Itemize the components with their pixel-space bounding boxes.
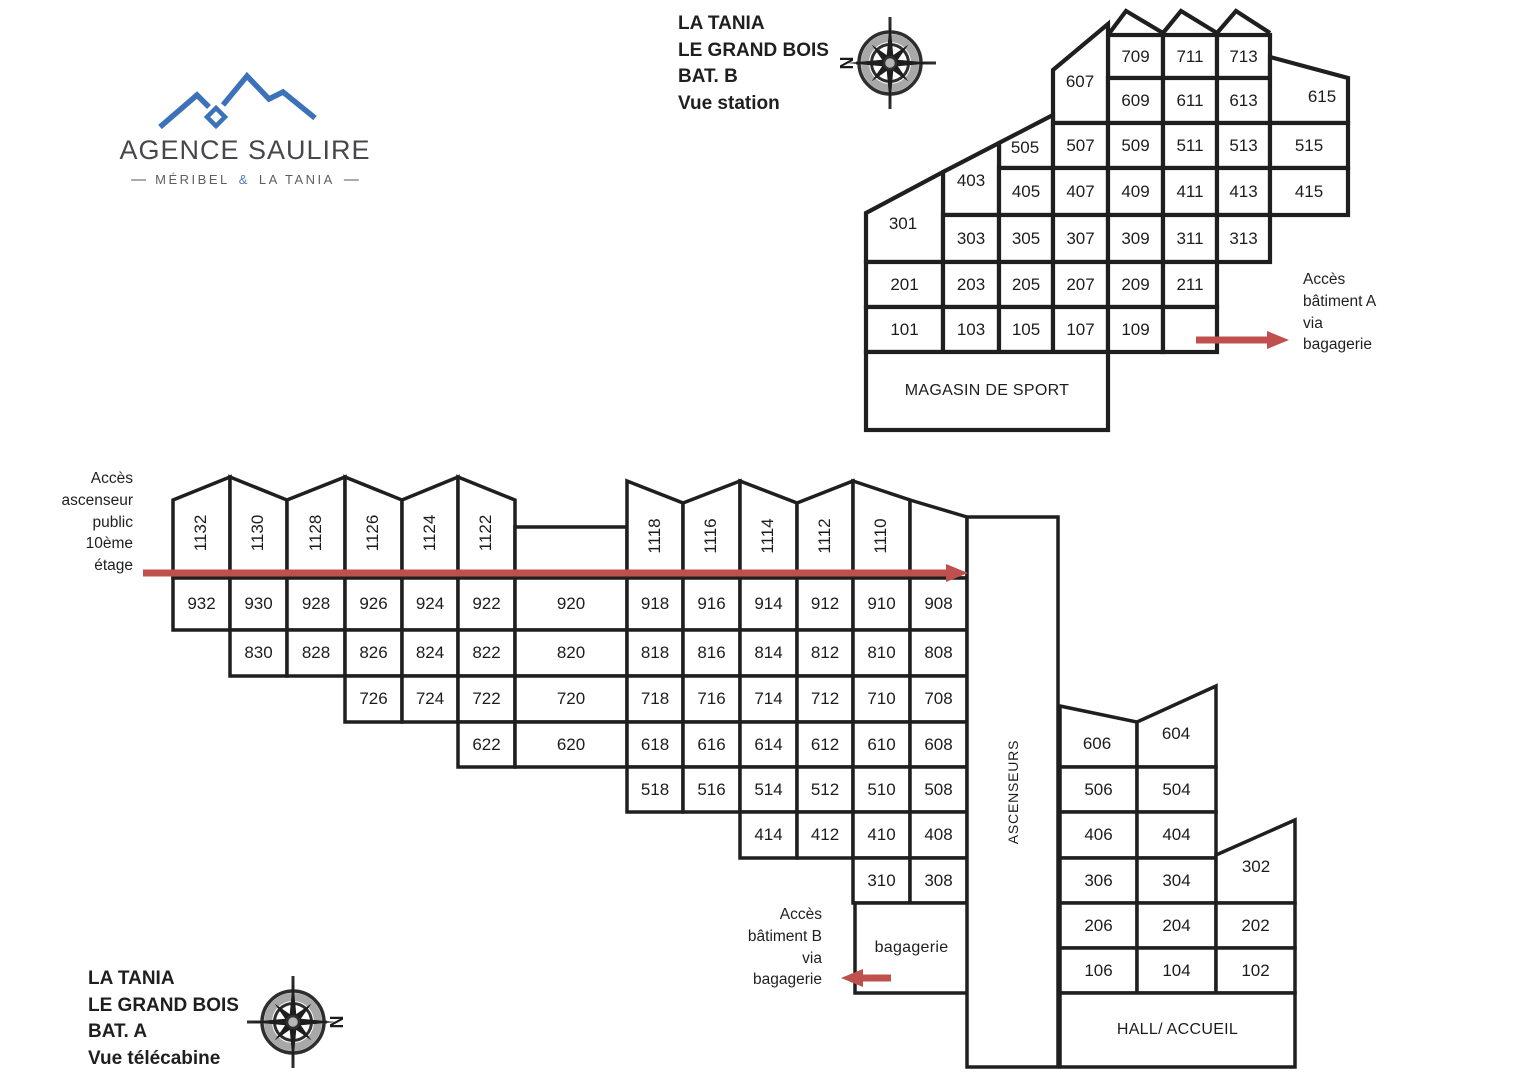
room-205-outline xyxy=(999,262,1053,307)
room-202-outline xyxy=(1216,903,1295,948)
room-104-outline xyxy=(1137,948,1216,993)
room-211-outline xyxy=(1163,262,1217,307)
compass-rose-icon: N xyxy=(247,976,346,1068)
room-511-outline xyxy=(1163,123,1217,168)
room-926-outline xyxy=(345,578,402,630)
room-609-outline xyxy=(1108,78,1163,123)
tagline-dash-left: — xyxy=(131,171,146,188)
room-408-outline xyxy=(910,812,967,858)
tagline-la-tania: LA TANIA xyxy=(259,172,335,187)
room-1132-outline xyxy=(173,477,230,578)
room-1118-outline xyxy=(627,481,683,578)
room-512-outline xyxy=(797,767,853,812)
room-505-outline xyxy=(999,115,1053,168)
room-808-outline xyxy=(910,630,967,676)
note-access-elevator: Accès ascenseur public 10ème étage xyxy=(23,468,133,577)
room-614-outline xyxy=(740,722,797,767)
room-509-outline xyxy=(1108,123,1163,168)
compass-rose-icon: N xyxy=(837,17,936,109)
room-ascenseurs-outline xyxy=(967,517,1058,1067)
room-606-outline xyxy=(1060,706,1137,767)
room-1110-outline xyxy=(853,481,910,578)
tagline-meribel: MÉRIBEL xyxy=(155,172,230,187)
room-103-outline xyxy=(943,307,999,352)
room-814-outline xyxy=(740,630,797,676)
room-109-outline xyxy=(1108,307,1163,352)
room-410-outline xyxy=(853,812,910,858)
room-816-outline xyxy=(683,630,740,676)
room-1130-outline xyxy=(230,477,287,578)
room-818-outline xyxy=(627,630,683,676)
room-1112-outline xyxy=(797,481,853,578)
room-308-outline xyxy=(910,858,967,903)
room-912-outline xyxy=(797,578,853,630)
room-409-outline xyxy=(1108,168,1163,215)
room-918-outline xyxy=(627,578,683,630)
room-716-outline xyxy=(683,676,740,722)
room-magasin-de-sport-outline xyxy=(866,352,1108,430)
room-204-outline xyxy=(1137,903,1216,948)
room-empty-outline xyxy=(910,500,967,578)
room-514-outline xyxy=(740,767,797,812)
room-830-outline xyxy=(230,630,287,676)
room-1124-outline xyxy=(402,477,458,578)
room-303-outline xyxy=(943,215,999,262)
room-709-outline xyxy=(1108,35,1163,78)
room-405-outline xyxy=(999,168,1053,215)
roof-peak-line-3 xyxy=(1217,11,1270,33)
room-306-outline xyxy=(1060,858,1137,903)
room-720-outline xyxy=(515,676,627,722)
room-307-outline xyxy=(1053,215,1108,262)
compass-n-label: N xyxy=(837,57,857,70)
title-a-line1: LA TANIA xyxy=(88,966,239,993)
room-916-outline xyxy=(683,578,740,630)
room-1114-outline xyxy=(740,481,797,578)
room-611-outline xyxy=(1163,78,1217,123)
room-607-outline xyxy=(1053,24,1108,123)
logo-name: AGENCE SAULIRE xyxy=(105,135,385,166)
room-824-outline xyxy=(402,630,458,676)
room-616-outline xyxy=(683,722,740,767)
room-412-outline xyxy=(797,812,853,858)
room-618-outline xyxy=(627,722,683,767)
room-910-outline xyxy=(853,578,910,630)
title-a-line4: Vue télécabine xyxy=(88,1046,239,1073)
room-404-outline xyxy=(1137,812,1216,858)
roof-peak-line-2 xyxy=(1163,11,1217,33)
room-406-outline xyxy=(1060,812,1137,858)
tagline-dash-right: — xyxy=(344,171,359,188)
room-610-outline xyxy=(853,722,910,767)
room-932-outline xyxy=(173,578,230,630)
roof-peak-line-1 xyxy=(1108,11,1163,35)
room-714-outline xyxy=(740,676,797,722)
title-b-line1: LA TANIA xyxy=(678,11,829,38)
room-710-outline xyxy=(853,676,910,722)
room-812-outline xyxy=(797,630,853,676)
title-building-b: LA TANIA LE GRAND BOIS BAT. B Vue statio… xyxy=(678,11,829,117)
room-311-outline xyxy=(1163,215,1217,262)
room-hall-accueil-outline xyxy=(1060,993,1295,1067)
room-101-outline xyxy=(866,307,943,352)
title-building-a: LA TANIA LE GRAND BOIS BAT. A Vue téléca… xyxy=(88,966,239,1072)
mountain-logo-icon xyxy=(155,60,325,132)
room-305-outline xyxy=(999,215,1053,262)
room-105-outline xyxy=(999,307,1053,352)
room-309-outline xyxy=(1108,215,1163,262)
room-106-outline xyxy=(1060,948,1137,993)
room-708-outline xyxy=(910,676,967,722)
room-201-outline xyxy=(866,262,943,307)
room-908-outline xyxy=(910,578,967,630)
room-612-outline xyxy=(797,722,853,767)
room-613-outline xyxy=(1217,78,1270,123)
room-413-outline xyxy=(1217,168,1270,215)
room-622-outline xyxy=(458,722,515,767)
room-209-outline xyxy=(1108,262,1163,307)
room-515-outline xyxy=(1270,123,1348,168)
room-820-outline xyxy=(515,630,627,676)
room-310-outline xyxy=(853,858,910,903)
room-301-outline xyxy=(866,172,943,262)
compass-n-label: N xyxy=(326,1016,346,1029)
title-b-line2: LE GRAND BOIS xyxy=(678,38,829,65)
room-516-outline xyxy=(683,767,740,812)
room-411-outline xyxy=(1163,168,1217,215)
room-506-outline xyxy=(1060,767,1137,812)
room-711-outline xyxy=(1163,35,1217,78)
room-724-outline xyxy=(402,676,458,722)
title-a-line2: LE GRAND BOIS xyxy=(88,993,239,1020)
room-604-outline xyxy=(1137,686,1216,767)
room-508-outline xyxy=(910,767,967,812)
room-507-outline xyxy=(1053,123,1108,168)
tagline-ampersand: & xyxy=(239,172,250,187)
room-403-outline xyxy=(943,143,999,215)
room-513-outline xyxy=(1217,123,1270,168)
title-b-line4: Vue station xyxy=(678,91,829,118)
room-504-outline xyxy=(1137,767,1216,812)
room-718-outline xyxy=(627,676,683,722)
room-518-outline xyxy=(627,767,683,812)
room-712-outline xyxy=(797,676,853,722)
room-304-outline xyxy=(1137,858,1216,903)
room-102-outline xyxy=(1216,948,1295,993)
room-1126-outline xyxy=(345,477,402,578)
room-empty-outline xyxy=(1163,307,1217,352)
room-415-outline xyxy=(1270,168,1348,215)
room-920-outline xyxy=(515,578,627,630)
room-1116-outline xyxy=(683,481,740,578)
title-a-line3: BAT. A xyxy=(88,1019,239,1046)
room-826-outline xyxy=(345,630,402,676)
room-107-outline xyxy=(1053,307,1108,352)
room-722-outline xyxy=(458,676,515,722)
room-822-outline xyxy=(458,630,515,676)
room-620-outline xyxy=(515,722,627,767)
room-407-outline xyxy=(1053,168,1108,215)
logo-tagline: — MÉRIBEL & LA TANIA — xyxy=(105,171,385,188)
room-810-outline xyxy=(853,630,910,676)
room-924-outline xyxy=(402,578,458,630)
room-207-outline xyxy=(1053,262,1108,307)
room-302-outline xyxy=(1216,820,1295,903)
room-928-outline xyxy=(287,578,345,630)
title-b-line3: BAT. B xyxy=(678,64,829,91)
room-203-outline xyxy=(943,262,999,307)
room-414-outline xyxy=(740,812,797,858)
room-922-outline xyxy=(458,578,515,630)
room-1122-outline xyxy=(458,477,515,578)
note-access-batiment-b: Accès bâtiment B via bagagerie xyxy=(662,904,822,991)
room-914-outline xyxy=(740,578,797,630)
room-828-outline xyxy=(287,630,345,676)
room-510-outline xyxy=(853,767,910,812)
note-access-batiment-a: Accès bâtiment A via bagagerie xyxy=(1303,269,1433,356)
room-608-outline xyxy=(910,722,967,767)
room-615-outline xyxy=(1270,57,1348,123)
room-726-outline xyxy=(345,676,402,722)
room-713-outline xyxy=(1217,35,1270,78)
floorplan-page: NN 7097117136076096116136155055075095115… xyxy=(0,0,1528,1080)
room-206-outline xyxy=(1060,903,1137,948)
room-930-outline xyxy=(230,578,287,630)
room-1128-outline xyxy=(287,477,345,578)
room-313-outline xyxy=(1217,215,1270,262)
